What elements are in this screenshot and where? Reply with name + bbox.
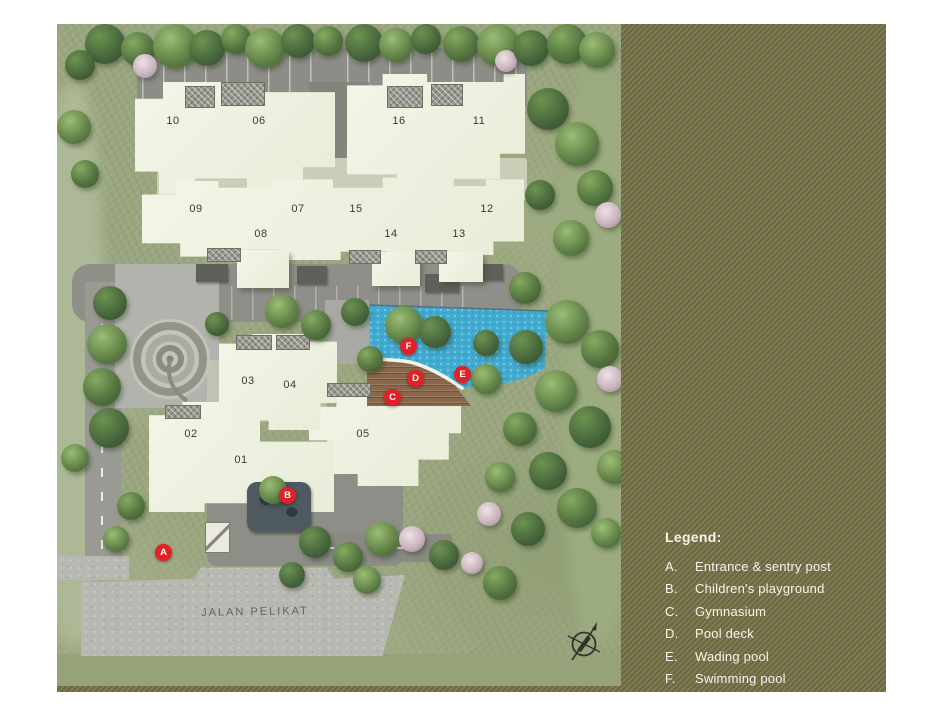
carport-roof [207,248,241,262]
flowering-tree [133,54,157,78]
legend-label: Gymnasium [695,604,766,619]
tree [473,330,499,356]
legend: Legend: A. Entrance & sentry post B. Chi… [665,529,880,690]
tree [535,370,577,412]
legend-label: Pool deck [695,626,754,641]
marker-a: A [155,544,172,561]
flowering-tree [595,202,621,228]
tree [557,488,597,528]
legend-key: F. [665,671,695,686]
tree [483,566,517,600]
building-number: 07 [286,203,310,215]
tree [503,412,537,446]
tree [93,286,127,320]
roof-shadow [196,264,228,282]
tree [357,346,383,372]
carport-roof [387,86,423,108]
tree [443,26,479,62]
legend-item-wading-pool: E. Wading pool [665,645,880,668]
flowering-tree [477,502,501,526]
carport-roof [349,250,381,264]
legend-key: D. [665,626,695,641]
sidewalk [57,556,129,580]
building-number: 08 [249,228,273,240]
legend-key: C. [665,604,695,619]
building-number: 14 [379,228,403,240]
flowering-tree [399,526,425,552]
legend-item-entrance: A. Entrance & sentry post [665,555,880,578]
tree [89,408,129,448]
tree [281,24,315,58]
legend-label: Swimming pool [695,671,786,686]
tree [345,24,383,62]
marker-c: C [384,389,401,406]
sentry-post [205,522,230,553]
tree [205,312,229,336]
tree [511,512,545,546]
legend-label: Entrance & sentry post [695,559,831,574]
tree [265,294,299,328]
building-number: 09 [184,203,208,215]
building-block-row2 [142,176,524,260]
building-number: 15 [344,203,368,215]
building-number: 04 [278,379,302,391]
building-number: 13 [447,228,471,240]
tree [299,526,331,558]
legend-label: Wading pool [695,649,769,664]
tree [279,562,305,588]
legend-item-gymnasium: C. Gymnasium [665,600,880,623]
building-number: 16 [387,115,411,127]
tree [529,452,567,490]
tree [57,110,91,144]
tree [379,28,413,62]
tree [509,330,543,364]
tree [83,368,121,406]
legend-key: B. [665,581,695,596]
site-plan-artwork: JALAN PELIKAT [57,24,886,692]
legend-item-playground: B. Children's playground [665,578,880,601]
tree [245,28,285,68]
carport-roof [327,383,371,397]
carport-roof [236,335,272,350]
tree [419,316,451,348]
tree [429,540,459,570]
tree [313,26,343,56]
site-plan-page: JALAN PELIKAT [0,0,943,717]
legend-panel: Legend: A. Entrance & sentry post B. Chi… [621,24,886,692]
carport-roof [276,335,310,350]
legend-key: E. [665,649,695,664]
building-number: 11 [467,115,491,127]
tree [411,24,441,54]
tree [509,272,541,304]
tree [569,406,611,448]
tree [527,88,569,130]
site-plan-map: JALAN PELIKAT [57,24,621,686]
tree [353,566,381,594]
tree [117,492,145,520]
tree [581,330,619,368]
building-number: 01 [229,454,253,466]
tree [365,522,399,556]
tree [513,30,549,66]
tree [553,220,589,256]
tree [103,526,129,552]
tree [71,160,99,188]
tree [65,50,95,80]
marker-d: D [407,370,424,387]
tree [555,122,599,166]
roof-shadow [297,266,327,284]
legend-item-pool-deck: D. Pool deck [665,623,880,646]
tree [301,310,331,340]
marker-f: F [400,338,417,355]
tree [525,180,555,210]
legend-item-swimming-pool: F. Swimming pool [665,668,880,691]
carport-roof [415,250,447,264]
tree [341,298,369,326]
tree [579,32,615,68]
building-number: 10 [161,115,185,127]
tree [87,324,127,364]
legend-key: A. [665,559,695,574]
tree [591,518,621,548]
carport-roof [431,84,463,106]
building-number: 02 [179,428,203,440]
marker-b: B [279,487,296,504]
tree [471,364,501,394]
legend-label: Children's playground [695,581,825,596]
building-ext-08 [237,250,289,288]
marker-e: E [454,366,471,383]
carport-roof [165,405,201,419]
building-number: 12 [475,203,499,215]
tree [485,462,515,492]
tree [545,300,589,344]
flowering-tree [597,366,621,392]
carport-roof [185,86,215,108]
tree [61,444,89,472]
tree [577,170,613,206]
building-number: 06 [247,115,271,127]
compass-icon [562,620,608,668]
building-number: 03 [236,375,260,387]
tree [189,30,225,66]
legend-title: Legend: [665,529,880,545]
building-number: 05 [351,428,375,440]
road-label: JALAN PELIKAT [183,605,327,620]
grass-strip-bottom [57,654,621,686]
carport-roof [221,82,265,106]
flowering-tree [461,552,483,574]
